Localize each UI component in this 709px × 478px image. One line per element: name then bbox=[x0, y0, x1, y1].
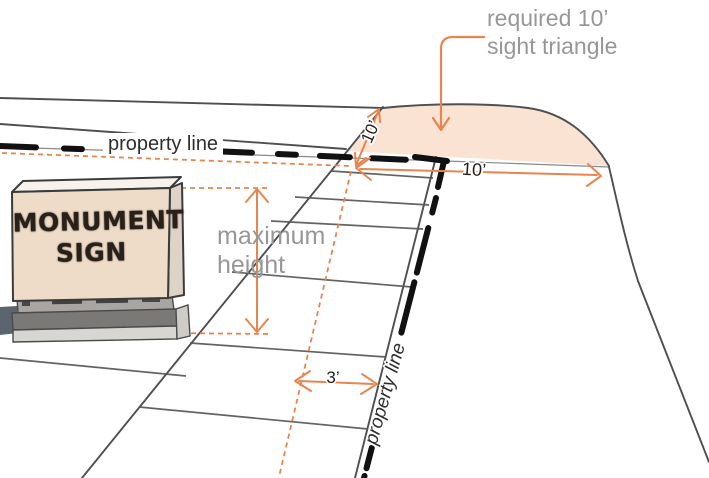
sight-triangle-label-line1: required 10’ bbox=[487, 4, 617, 32]
dim-3-label: 3’ bbox=[326, 368, 339, 388]
monument-sign-text: MONUMENT SIGN bbox=[12, 204, 169, 269]
sign-base bbox=[12, 295, 190, 342]
max-height-label-line2: height bbox=[217, 251, 325, 280]
max-height-label-line1: maximum bbox=[217, 222, 325, 251]
max-height-label: maximum height bbox=[217, 222, 325, 280]
monument-sign-text-line1: MONUMENT bbox=[12, 204, 169, 238]
setback-diagram: required 10’ sight triangle maximum heig… bbox=[0, 0, 709, 478]
property-line-front-label: property line bbox=[103, 133, 223, 156]
sight-triangle-label: required 10’ sight triangle bbox=[487, 4, 617, 60]
monument-sign-text-line2: SIGN bbox=[13, 235, 170, 269]
dim-10-horizontal-label: 10’ bbox=[461, 159, 486, 182]
front-sidewalk-joint bbox=[0, 358, 186, 376]
sight-triangle-label-line2: sight triangle bbox=[487, 32, 617, 60]
side-road-edge bbox=[609, 167, 709, 462]
side-setback-dashed-line bbox=[279, 171, 351, 477]
